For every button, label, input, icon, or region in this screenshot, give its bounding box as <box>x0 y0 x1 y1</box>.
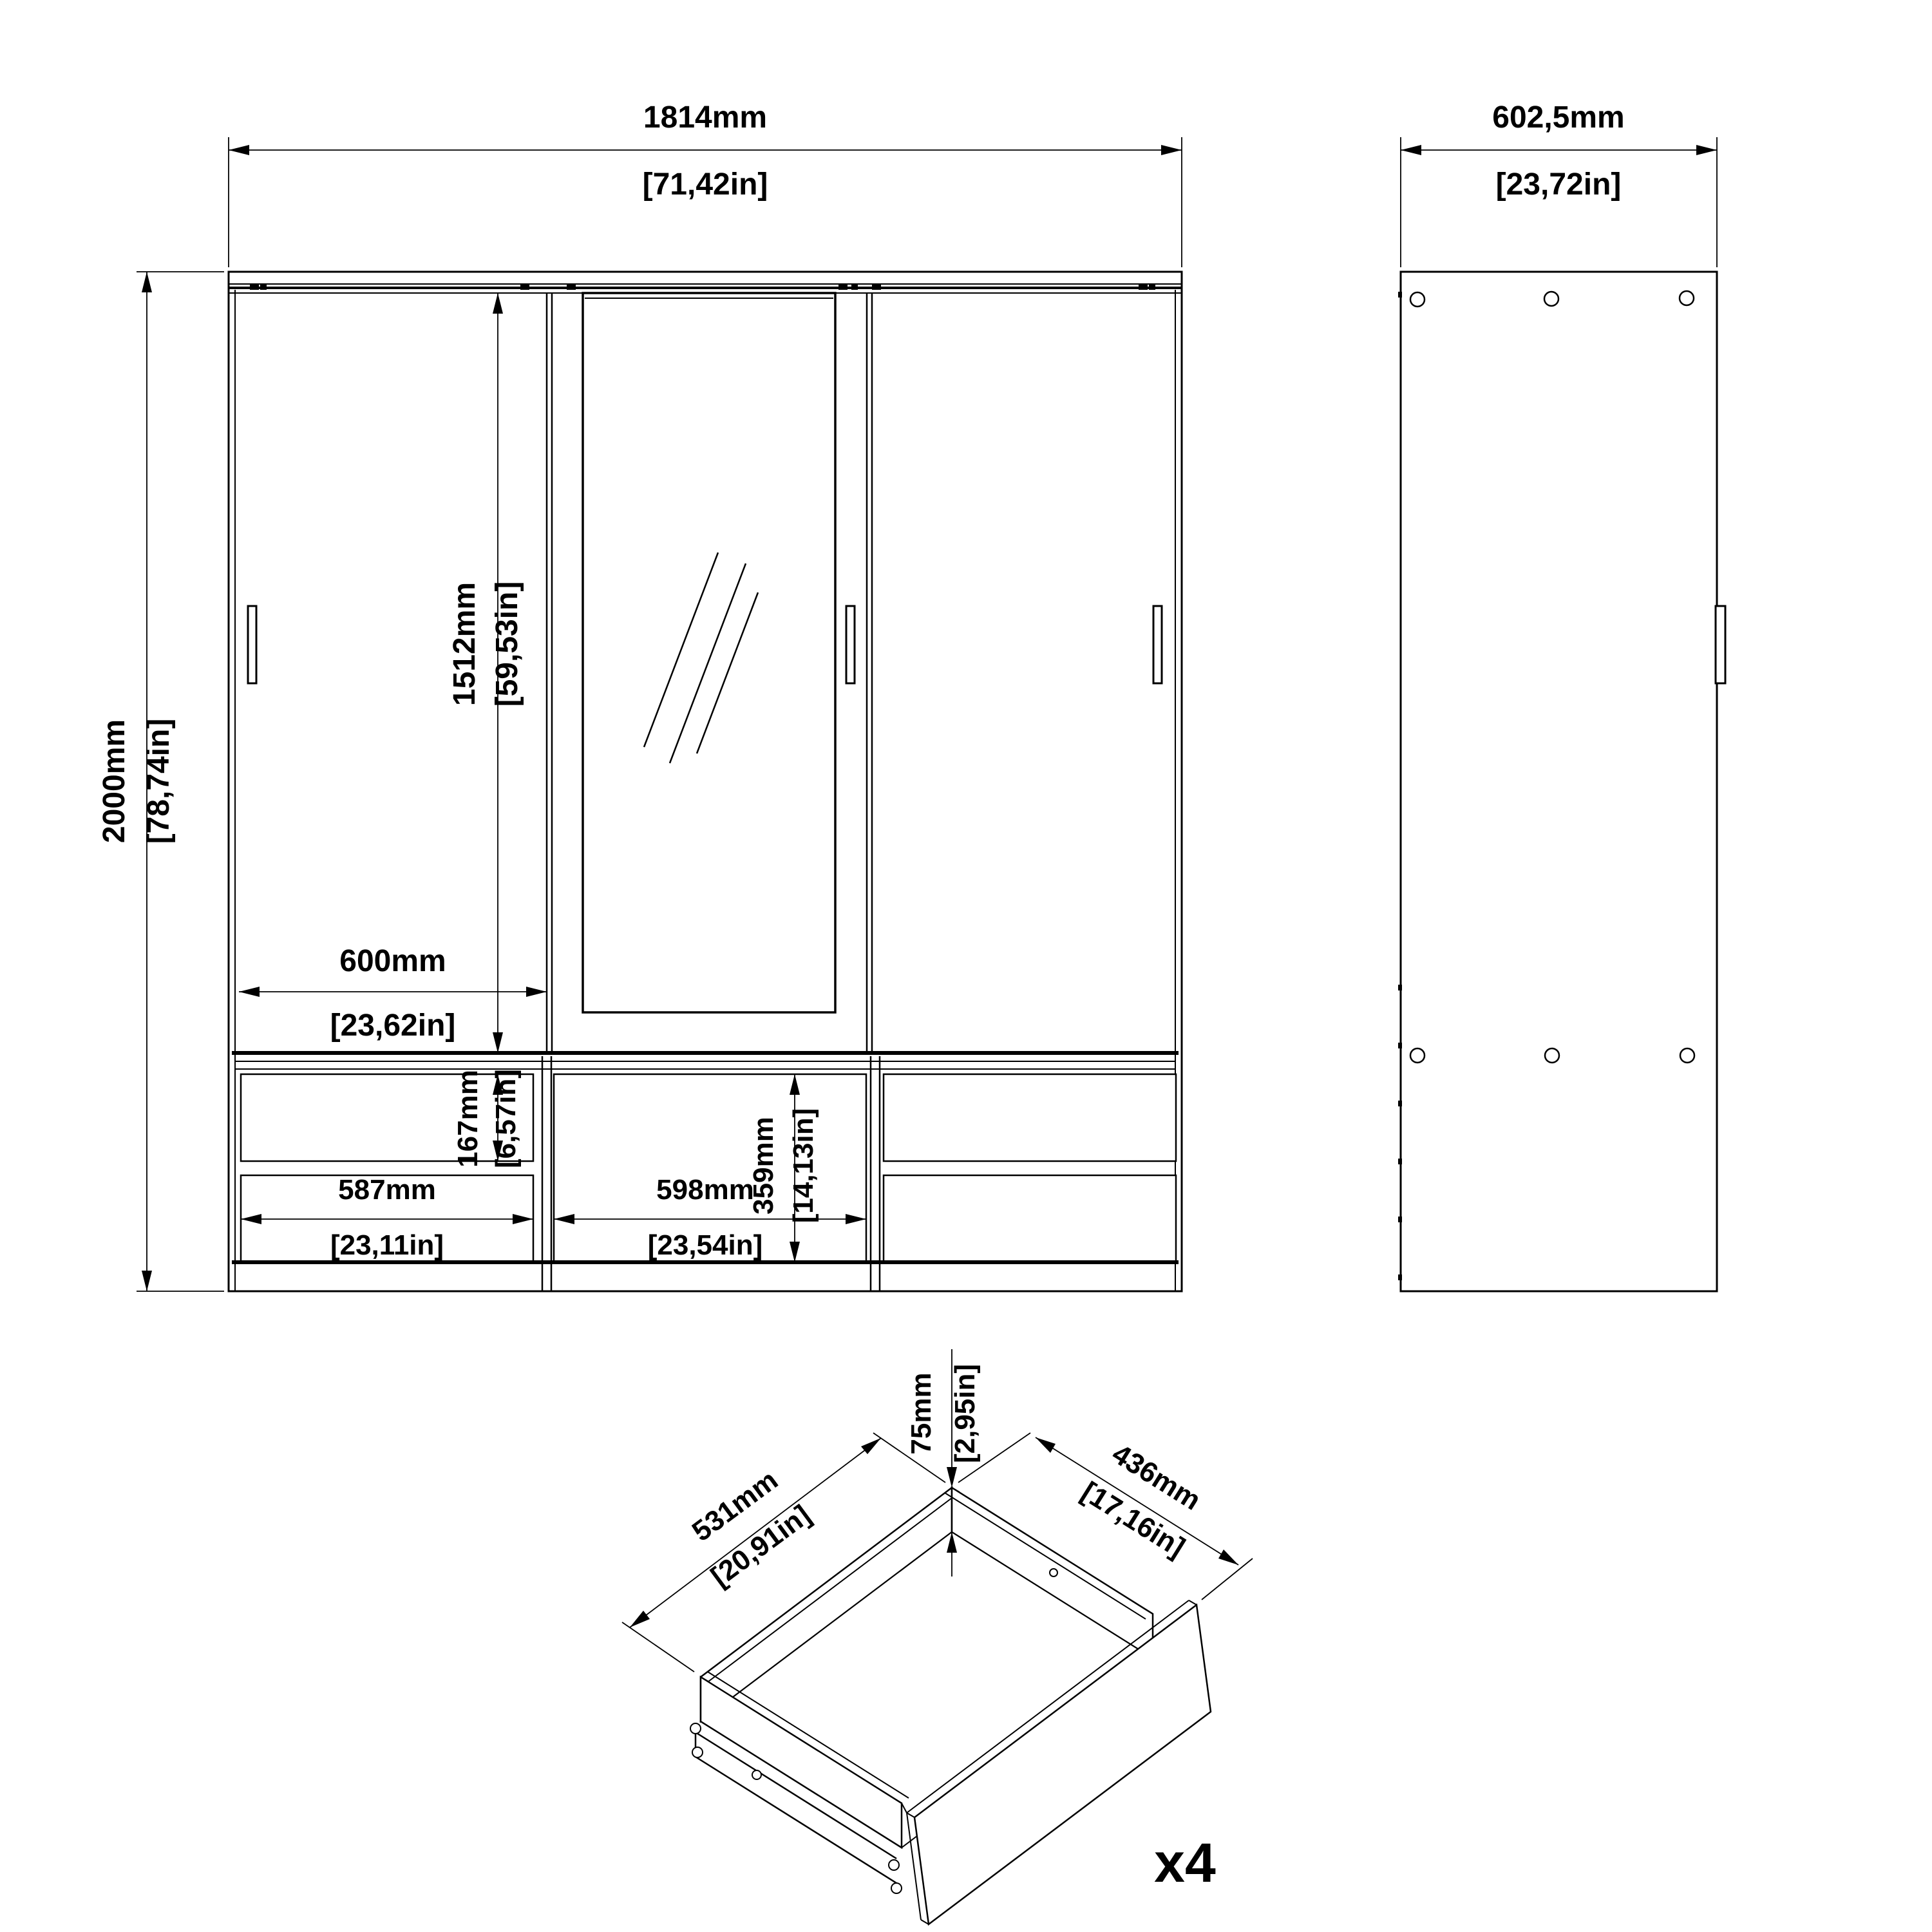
rail-screw <box>692 1747 703 1757</box>
left-top-drawer-front <box>241 1074 533 1161</box>
dim-label: 602,5mm <box>1492 100 1624 135</box>
dim-overall-height: 2000mm [78,74in] <box>97 272 224 1291</box>
drawer-side-hole <box>1050 1569 1057 1577</box>
rail-screw <box>690 1723 701 1734</box>
side-view: 602,5mm [23,72in] <box>1398 100 1725 1291</box>
dim-label: 600mm <box>339 944 446 978</box>
right-top-drawer-front <box>884 1074 1176 1161</box>
drawer-quantity-label: x4 <box>1154 1832 1216 1894</box>
left-door-handle <box>248 606 256 683</box>
dim-label-imperial: [78,74in] <box>142 719 176 844</box>
dim-overall-width: 1814mm [71,42in] <box>229 100 1182 267</box>
mirror <box>583 293 835 1012</box>
middle-door-handle <box>846 606 855 683</box>
rail-screw <box>752 1770 761 1779</box>
dim-label: 75mm <box>905 1372 937 1454</box>
dim-label-imperial: [23,11in] <box>330 1229 444 1261</box>
dim-label: 587mm <box>338 1174 436 1206</box>
dim-depth: 602,5mm [23,72in] <box>1401 100 1717 267</box>
right-bottom-drawer-front <box>884 1175 1176 1262</box>
dim-label: 2000mm <box>97 719 131 843</box>
technical-drawing-page: 1814mm [71,42in] 2000mm [78,74in] 1512mm… <box>0 0 1932 1932</box>
dim-label-imperial: [6,57in] <box>490 1069 522 1168</box>
dim-label: 598mm <box>656 1174 754 1206</box>
dim-label: 1512mm <box>448 582 482 706</box>
dim-label: 167mm <box>452 1070 484 1168</box>
dim-label-imperial: [2,95in] <box>949 1364 981 1463</box>
dim-label-imperial: [71,42in] <box>643 167 768 202</box>
rail-screw <box>891 1883 902 1893</box>
dim-label: 1814mm <box>643 100 767 135</box>
dim-label-imperial: [23,62in] <box>330 1009 456 1043</box>
side-door-handle <box>1716 606 1725 683</box>
side-outline <box>1401 272 1717 1291</box>
dim-label-imperial: [23,54in] <box>648 1229 763 1261</box>
dim-label-imperial: [14,13in] <box>788 1108 819 1224</box>
dim-label-imperial: [23,72in] <box>1496 167 1622 202</box>
wardrobe-dimension-drawing: 1814mm [71,42in] 2000mm [78,74in] 1512mm… <box>0 0 1932 1932</box>
rail-screw <box>889 1860 899 1870</box>
dim-label-imperial: [59,53in] <box>490 582 524 707</box>
drawer-detail: 75mm [2,95in] 531mm [20,91in] 436mm [17,… <box>622 1349 1253 1924</box>
right-door-handle <box>1153 606 1162 683</box>
front-view <box>229 272 1182 1291</box>
